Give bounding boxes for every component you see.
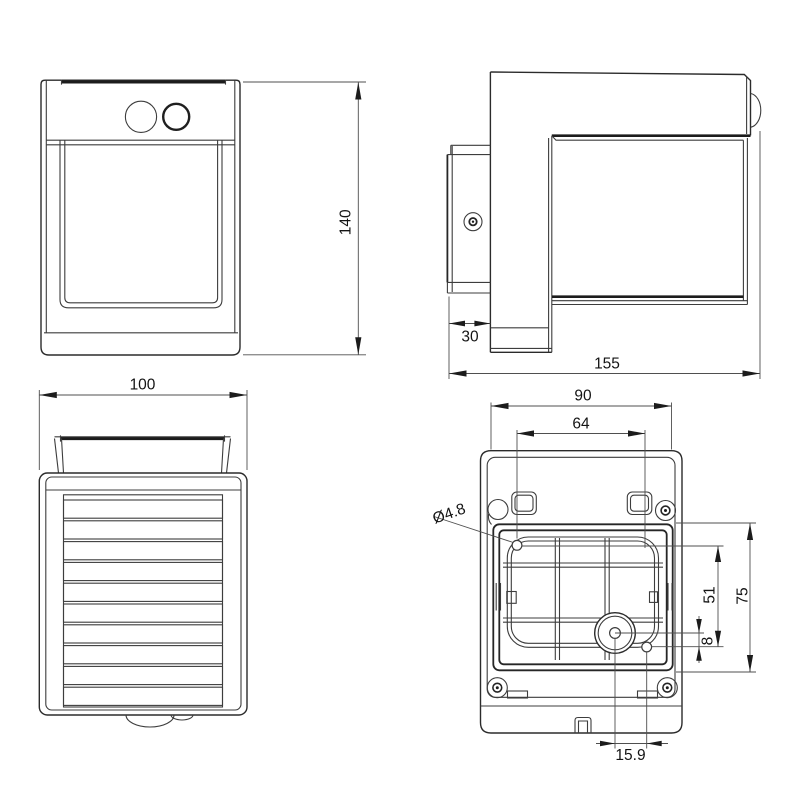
wall-plate [447,145,490,293]
inner-width-label: 64 [572,416,590,433]
sensor-dome-arc-large [126,715,174,727]
arrowhead-left [491,403,509,409]
arrowhead-down [355,337,361,355]
boss-bottom-right-screw [657,678,677,698]
louver-slats [64,500,223,705]
center-offset-h-label: 15.9 [615,747,645,764]
side-width-dimension: 155 [449,131,760,379]
louver-slat [64,542,223,560]
arm-right-edges [549,136,552,353]
arrowhead-right [230,392,248,398]
front-height-dimension: 140 [243,82,366,355]
arrowhead-left [449,370,467,376]
bottom-view [39,435,247,727]
louver-slat [64,583,223,601]
arrowhead-up [355,82,361,100]
diffuser-right-edges [743,138,747,305]
louver-slat [64,521,223,539]
screw-dot [666,686,669,689]
screw-dot [664,509,667,512]
arm-bottom-block [490,328,551,349]
front-pir-sensor-circle [163,104,189,130]
louver-slat [64,500,223,518]
extension-lines [39,390,247,470]
rib-grid [503,537,663,660]
junction-box-frame-inner [499,530,666,664]
front-sensor-band-bottom [46,140,235,145]
back-protrusion-sides [55,439,231,474]
box-height-label: 75 [735,587,752,604]
skirt-notch [575,718,591,734]
mounting-hole-top-left [512,540,522,550]
boss-bottom-left-screw [487,678,507,698]
top-tab-left-inner [515,495,533,511]
wall-plate-top-flange [447,145,490,154]
hole-diameter-label: Ø4.8 [431,500,468,527]
boss-top-right-screw [656,501,676,521]
hole-offset-label: 51 [702,586,719,603]
side-view [447,72,760,352]
height-dimension-label: 140 [337,209,354,235]
front-body-outline [41,80,240,355]
front-recess-inner [65,140,218,303]
louver-slat [64,625,223,643]
arrowhead-left [39,392,57,398]
louver-slat [64,604,223,622]
arrowhead-up-outside [696,647,702,661]
arrowhead-down-outside [696,619,702,633]
small-hole-bottom-right [642,642,652,652]
arrowhead-right [474,321,490,327]
arrowhead-up [747,523,753,540]
extension-lines [449,131,760,379]
frame-side-clips [496,583,672,611]
side-depth-dimension: 30 [449,297,490,380]
arrowhead-left-outside [647,741,662,747]
louver-slat [64,646,223,664]
arrowhead-left [449,321,465,327]
arrowhead-right [654,403,672,409]
sensor-bump-arc [751,94,761,128]
boss-top-left-circle [488,500,508,520]
front-photocell-circle [125,101,156,132]
technical-drawing-sheet: 140 100 [0,0,800,800]
front-recess-outer [60,140,222,308]
arrowhead-left [517,430,534,436]
bottom-body-outline [39,473,247,715]
bottom-body-inner [46,477,241,710]
width-dimension-label: 100 [130,377,156,394]
arrowhead-down [747,655,753,672]
mount-width-label: 90 [574,388,592,405]
louver-slat [64,687,223,705]
back-view [481,451,683,733]
arrowhead-right [628,430,645,436]
depth-dimension-label: 30 [461,329,479,346]
back-view-dimensions: 90 64 Ø4.8 75 51 8 15.9 [431,388,756,765]
front-body-inner-sides [46,80,235,333]
diffuser-lip [552,301,747,305]
drawing-canvas: 140 100 [0,0,800,800]
top-tab-right-inner [631,495,649,511]
arrowhead-right-outside [600,741,615,747]
wall-plate-bottom-flange [447,282,490,293]
arrowhead-right [743,370,761,376]
front-view [41,80,240,355]
head-top-edge [490,72,750,136]
grid-horizontal-ribs [503,563,663,622]
louver-slat [64,666,223,684]
louver-slat [64,562,223,580]
plate-screw-dot [472,221,474,223]
center-offset-v-label: 8 [700,637,717,646]
arrowhead-up [715,546,721,562]
screw-dot [496,686,499,689]
overall-depth-label: 155 [594,356,620,373]
side-latch-right [650,592,658,603]
bottom-width-dimension: 100 [39,377,247,471]
